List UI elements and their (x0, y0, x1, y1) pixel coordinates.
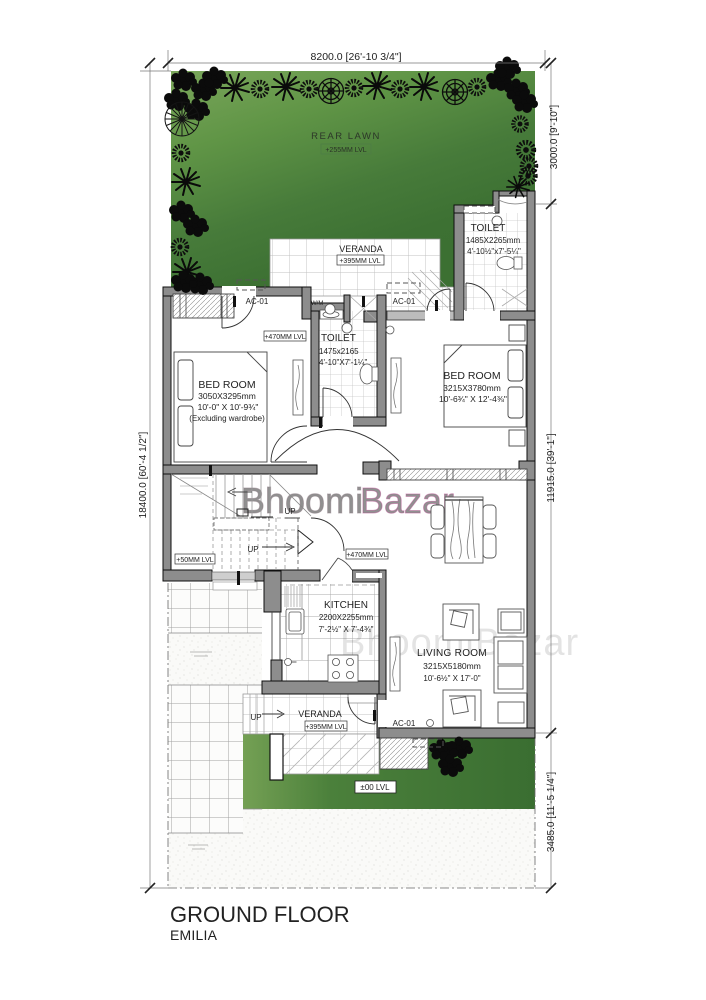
svg-text:AC-01: AC-01 (393, 297, 416, 306)
svg-text:±00 LVL: ±00 LVL (360, 783, 390, 792)
svg-text:VERANDA: VERANDA (298, 709, 342, 719)
svg-text:4'-10"X7'-1¼": 4'-10"X7'-1¼" (319, 358, 367, 367)
svg-text:3050X3295mm: 3050X3295mm (198, 391, 256, 401)
svg-text:11915.0 [39'-1"]: 11915.0 [39'-1"] (546, 433, 557, 502)
svg-text:18400.0 [60'-4 1/2"]: 18400.0 [60'-4 1/2"] (138, 431, 149, 518)
svg-text:AC-01: AC-01 (246, 297, 269, 306)
svg-text:BED ROOM: BED ROOM (198, 379, 255, 391)
svg-text:10'-6¾" X 12'-4⅜": 10'-6¾" X 12'-4⅜" (439, 394, 507, 404)
svg-text:VERANDA: VERANDA (339, 244, 383, 254)
svg-text:(Excluding wardrobe): (Excluding wardrobe) (189, 414, 265, 423)
svg-text:UP: UP (250, 713, 261, 722)
svg-text:7'-2½" X 7'-4¾": 7'-2½" X 7'-4¾" (319, 625, 374, 634)
svg-text:3215X5180mm: 3215X5180mm (423, 661, 481, 671)
svg-text:TOILET: TOILET (471, 223, 506, 234)
svg-text:W/M: W/M (311, 301, 323, 307)
svg-text:LIVING ROOM: LIVING ROOM (417, 648, 487, 659)
svg-text:UP: UP (284, 507, 295, 516)
svg-text:+470MM LVL: +470MM LVL (346, 552, 387, 559)
svg-text:+470MM LVL: +470MM LVL (264, 334, 305, 341)
svg-text:TOILET: TOILET (321, 333, 356, 344)
svg-text:8200.0 [26'-10 3/4"]: 8200.0 [26'-10 3/4"] (311, 51, 402, 63)
svg-text:Bhoomi: Bhoomi (241, 480, 363, 521)
svg-text:3485.0 [11'-5 1/4"]: 3485.0 [11'-5 1/4"] (546, 772, 557, 853)
svg-text:+395MM LVL: +395MM LVL (305, 724, 346, 731)
svg-text:1485X2265mm: 1485X2265mm (466, 236, 521, 245)
svg-text:3215X3780mm: 3215X3780mm (443, 383, 501, 393)
svg-text:AC-01: AC-01 (393, 719, 416, 728)
svg-text:10'-6½" X 17'-0": 10'-6½" X 17'-0" (423, 674, 480, 683)
svg-text:GROUND FLOOR: GROUND FLOOR (170, 902, 350, 927)
svg-text:4'-10½"x7'-5¼": 4'-10½"x7'-5¼" (467, 247, 521, 256)
svg-text:+255MM LVL: +255MM LVL (325, 147, 366, 154)
svg-text:BED ROOM: BED ROOM (443, 370, 500, 382)
svg-text:1475x2165: 1475x2165 (319, 347, 359, 356)
svg-text:10'-0" X 10'-9¾": 10'-0" X 10'-9¾" (198, 402, 259, 412)
svg-text:+395MM LVL: +395MM LVL (339, 258, 380, 265)
svg-text:EMILIA: EMILIA (170, 927, 218, 943)
svg-text:UP: UP (247, 545, 258, 554)
svg-text:3000.0 [9'-10"]: 3000.0 [9'-10"] (549, 105, 560, 170)
svg-text:+50MM LVL: +50MM LVL (176, 557, 214, 564)
svg-text:KITCHEN: KITCHEN (324, 600, 368, 611)
svg-text:2200X2255mm: 2200X2255mm (319, 613, 374, 622)
svg-text:REAR LAWN: REAR LAWN (311, 131, 381, 142)
